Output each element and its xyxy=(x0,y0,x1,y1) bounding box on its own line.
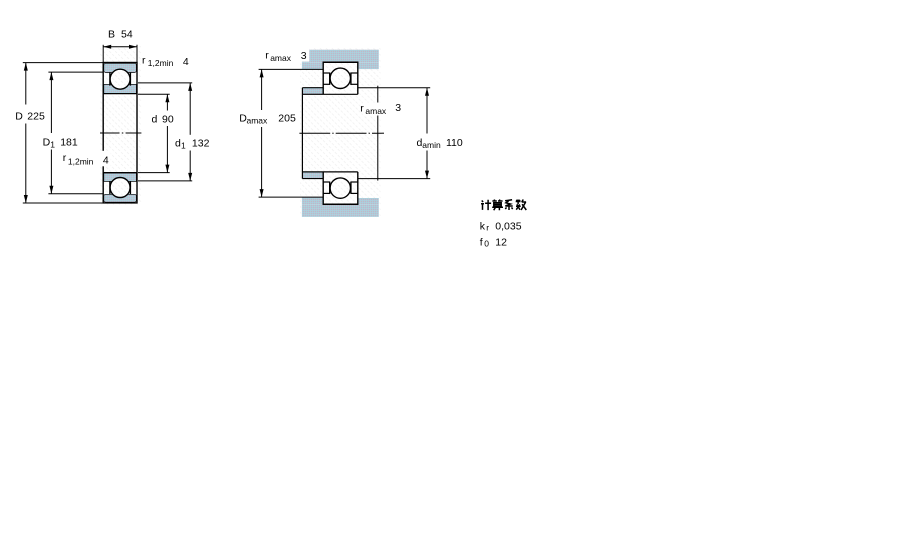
svg-text:0: 0 xyxy=(484,239,489,249)
svg-text:k: k xyxy=(480,221,486,233)
svg-text:54: 54 xyxy=(121,28,133,40)
svg-text:r: r xyxy=(142,54,146,66)
svg-text:3: 3 xyxy=(301,50,307,62)
svg-text:225: 225 xyxy=(27,111,45,123)
svg-text:amax: amax xyxy=(365,106,387,116)
svg-text:D: D xyxy=(15,111,23,123)
svg-text:f: f xyxy=(480,236,483,248)
svg-text:181: 181 xyxy=(60,136,78,148)
svg-text:r: r xyxy=(486,223,489,233)
svg-text:205: 205 xyxy=(278,113,296,125)
svg-text:d: d xyxy=(152,113,158,125)
svg-text:3: 3 xyxy=(395,102,401,114)
svg-text:4: 4 xyxy=(183,56,189,68)
svg-text:amax: amax xyxy=(247,115,269,125)
svg-text:amin: amin xyxy=(422,140,441,150)
svg-text:0,035: 0,035 xyxy=(495,221,521,233)
svg-text:1,2min: 1,2min xyxy=(68,157,94,167)
svg-text:amax: amax xyxy=(270,53,292,63)
svg-text:1: 1 xyxy=(181,140,186,150)
svg-text:1: 1 xyxy=(50,139,55,149)
svg-text:110: 110 xyxy=(446,137,463,149)
svg-text:12: 12 xyxy=(495,236,507,248)
svg-text:r: r xyxy=(63,152,67,164)
svg-text:B: B xyxy=(108,28,115,40)
svg-text:1,2min: 1,2min xyxy=(148,58,174,68)
svg-text:r: r xyxy=(360,103,364,115)
svg-text:4: 4 xyxy=(103,154,109,166)
svg-text:132: 132 xyxy=(192,137,210,149)
svg-text:90: 90 xyxy=(162,113,174,125)
svg-text:r: r xyxy=(265,50,269,62)
